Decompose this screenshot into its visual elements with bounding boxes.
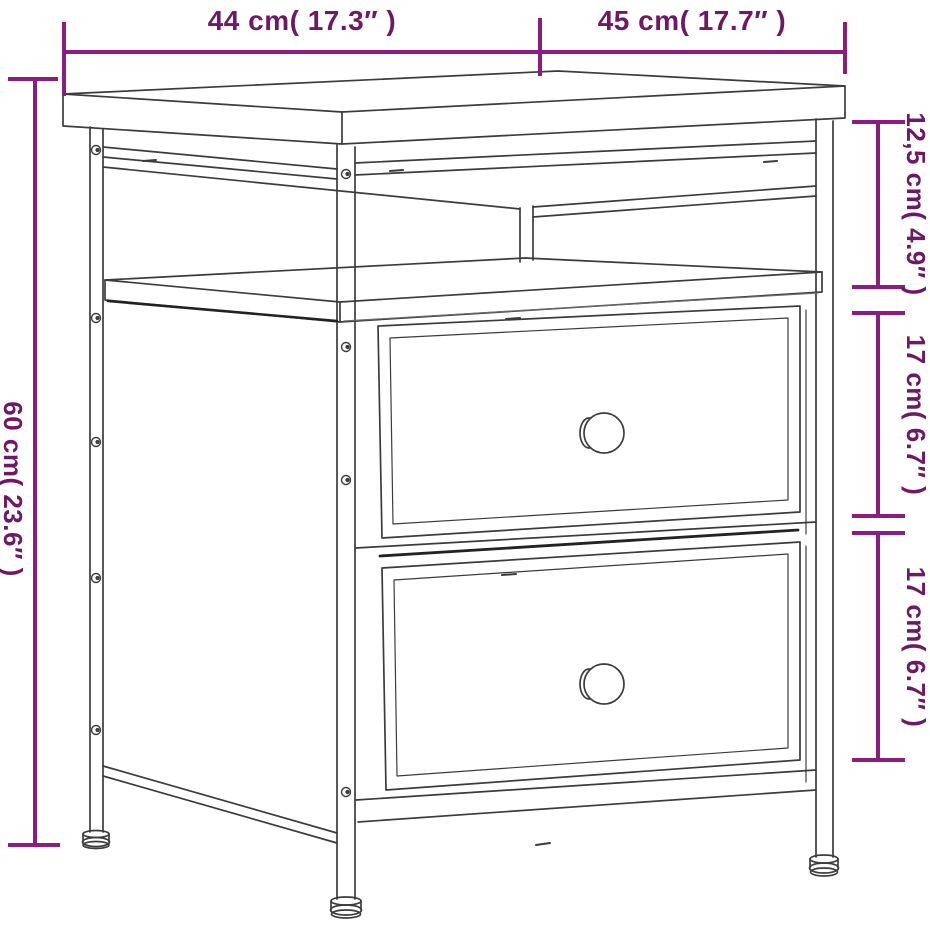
middle-shelf — [105, 258, 822, 322]
screw-icon — [342, 343, 351, 352]
diagram-canvas: 44 cm( 17.3″ ) 45 cm( 17.7″ ) 60 cm( 23.… — [0, 0, 930, 930]
cam-lock-marks — [143, 160, 777, 845]
drawer-1-knob — [580, 413, 624, 453]
foot-back-left — [83, 831, 110, 849]
dim-shelf-opening — [852, 122, 905, 287]
label-top-depth: 45 cm( 17.7″ ) — [598, 5, 787, 36]
drawer-1 — [378, 306, 806, 538]
feet — [83, 831, 839, 919]
screw-icon — [92, 146, 101, 155]
bottom-rails — [103, 766, 816, 843]
label-drawer2-height: 17 cm( 6.7″ ) — [901, 567, 930, 728]
foot-front-right — [810, 855, 839, 876]
label-height: 60 cm( 23.6″ ) — [0, 401, 28, 577]
drawer-divider — [356, 522, 816, 556]
dim-drawer1-height — [852, 313, 905, 516]
screw-icon — [342, 788, 351, 797]
screw-icon — [342, 170, 351, 179]
drawer-2-knob — [580, 664, 624, 704]
label-shelf-opening: 12,5 cm( 4.9″ ) — [901, 112, 930, 295]
screw-icon — [92, 574, 101, 583]
label-drawer1-height: 17 cm( 6.7″ ) — [901, 335, 930, 496]
screw-icon — [92, 314, 101, 323]
tabletop — [63, 71, 845, 144]
dimension-diagram: 44 cm( 17.3″ ) 45 cm( 17.7″ ) 60 cm( 23.… — [0, 0, 930, 930]
dimension-annotations — [8, 18, 905, 845]
label-top-width: 44 cm( 17.3″ ) — [208, 5, 397, 36]
nightstand-line-drawing — [63, 71, 845, 918]
screw-icon — [92, 726, 101, 735]
legs — [90, 119, 833, 899]
screws — [92, 146, 351, 797]
drawer-2 — [382, 542, 806, 790]
dim-drawer2-height — [852, 533, 905, 760]
screw-icon — [342, 476, 351, 485]
top-rails — [103, 141, 816, 217]
foot-front-left — [331, 897, 362, 918]
screw-icon — [92, 438, 101, 447]
